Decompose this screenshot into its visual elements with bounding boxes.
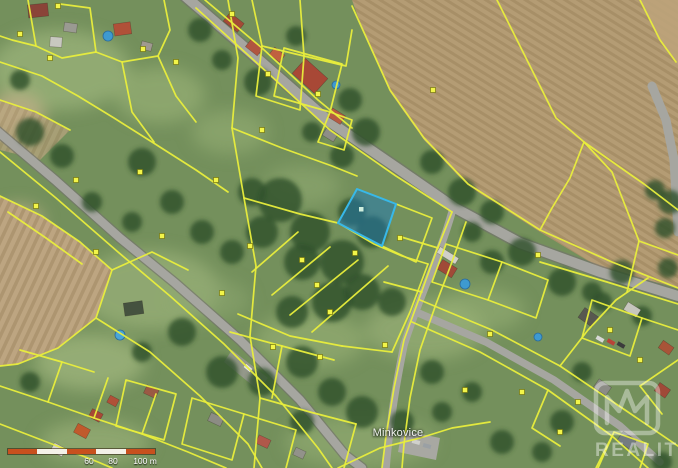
- scalebar-label: 80: [108, 456, 117, 466]
- watermark-text: REALITY: [595, 440, 678, 462]
- scalebar-label: 100 m: [133, 456, 157, 466]
- map-scalebar: 60 80 100 m: [8, 449, 178, 467]
- scalebar-segment: [8, 449, 37, 454]
- scalebar-label: 60: [84, 456, 93, 466]
- aerial-map-canvas: [0, 0, 678, 468]
- scalebar-segment: [126, 449, 155, 454]
- scalebar-segment: [96, 449, 125, 454]
- place-label-minkovice: Minkovice: [355, 427, 441, 439]
- selected-parcel-marker: [359, 207, 364, 212]
- realty-logo-icon: [592, 380, 662, 438]
- scalebar-segments: [8, 449, 155, 454]
- scalebar-segment: [67, 449, 96, 454]
- map-viewport[interactable]: Minkovice 60 80 100 m REALITY: [0, 0, 678, 468]
- scalebar-segment: [37, 449, 66, 454]
